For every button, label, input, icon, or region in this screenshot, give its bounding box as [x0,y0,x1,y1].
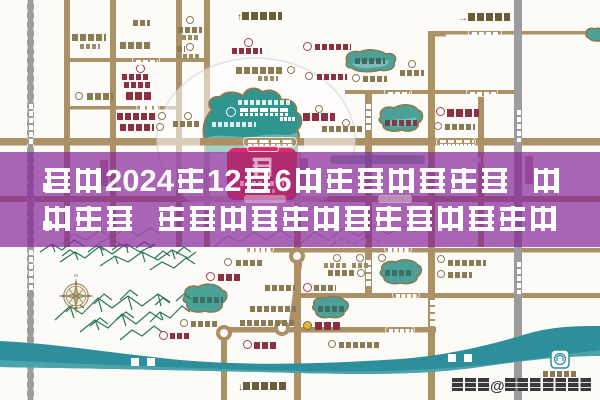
svg-text:N: N [74,273,78,279]
